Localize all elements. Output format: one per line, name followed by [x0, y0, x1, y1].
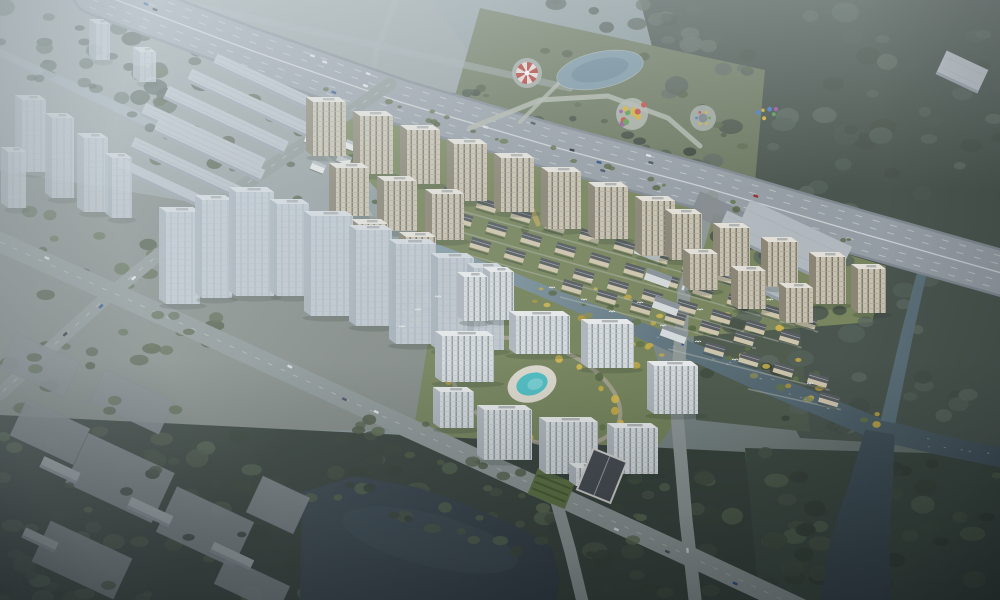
aerial-masterplan-rendering	[0, 0, 1000, 600]
atmosphere-layer	[0, 0, 1000, 600]
rendering-canvas	[0, 0, 1000, 600]
vignette	[0, 0, 1000, 600]
